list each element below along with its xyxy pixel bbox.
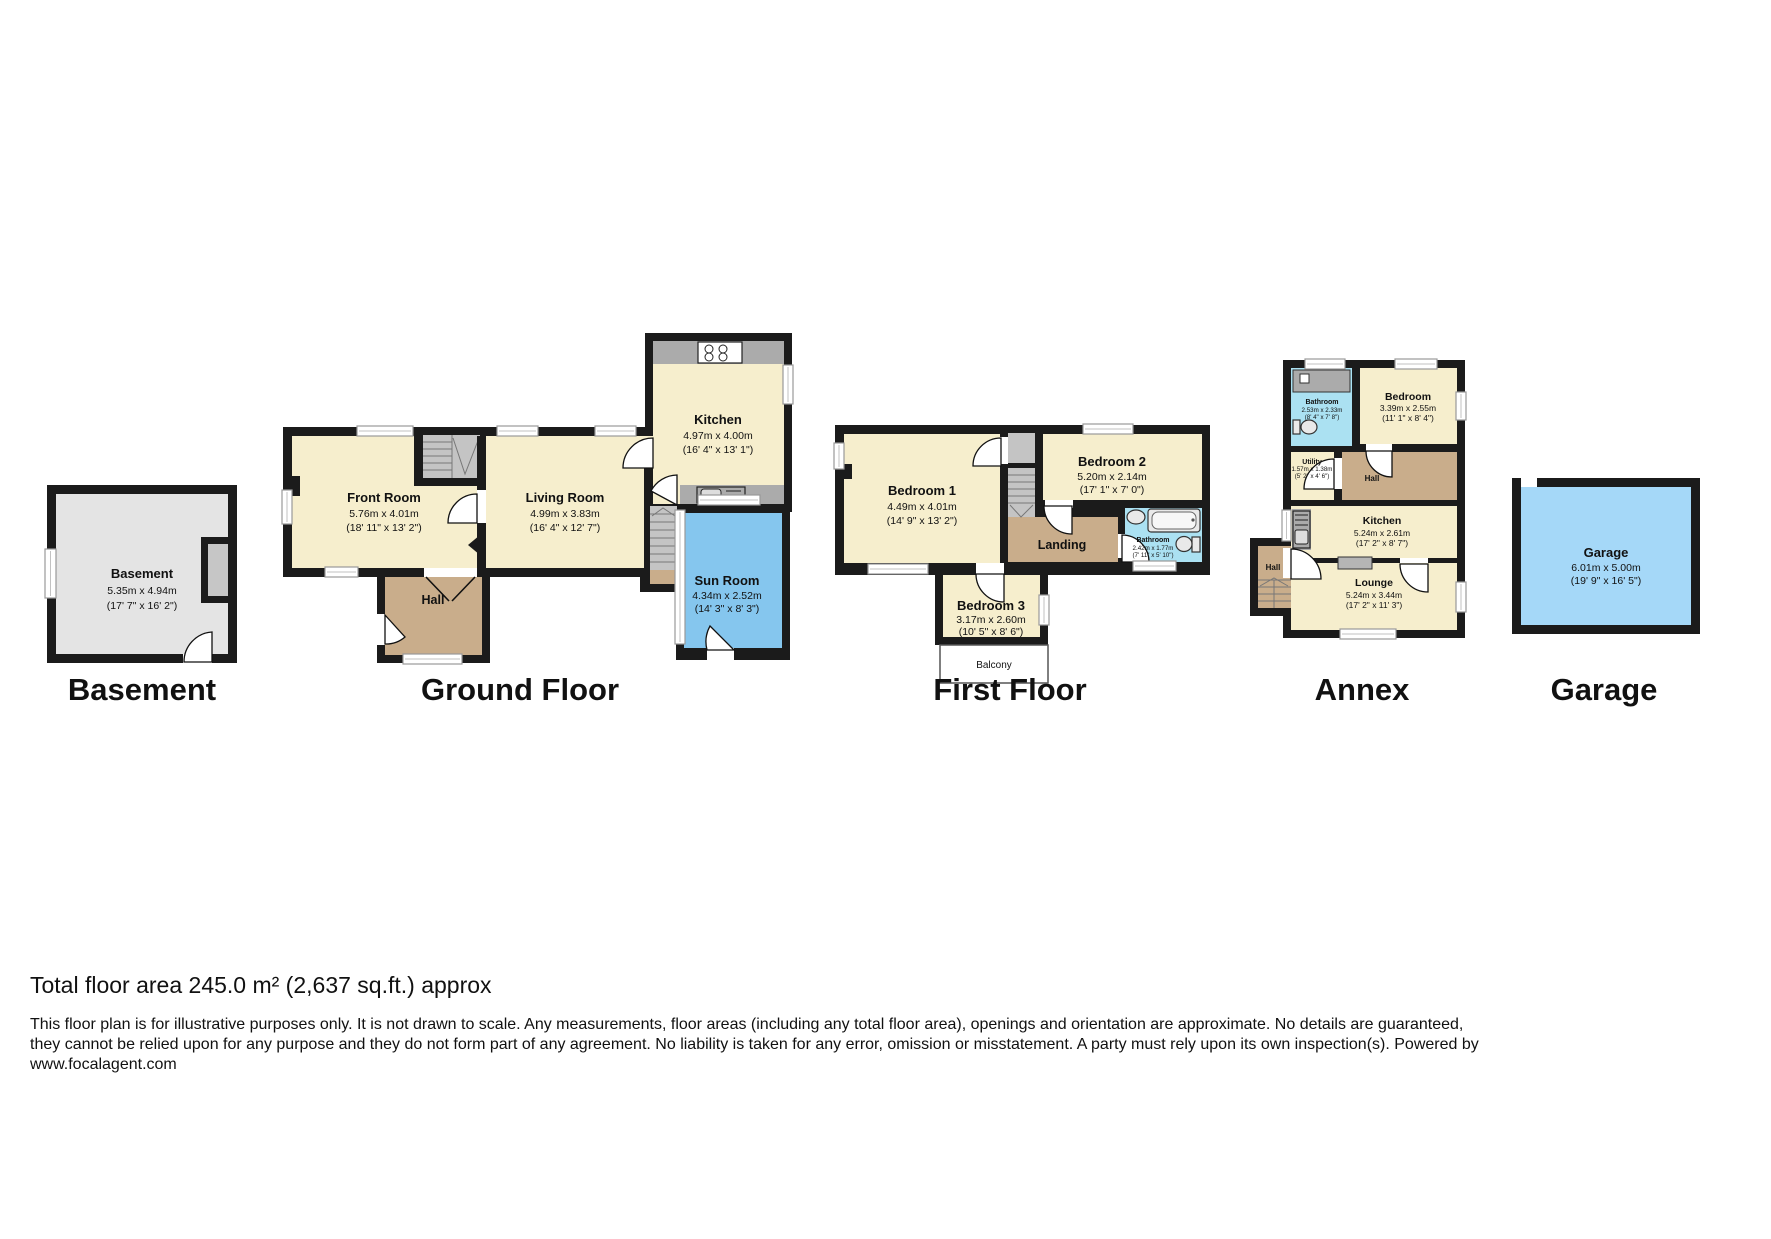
ground-floor-plan: Front Room 5.76m x 4.01m (18' 11" x 13' …	[282, 333, 793, 664]
front-room-name: Front Room	[347, 490, 421, 505]
room-annex-hall	[1342, 452, 1457, 500]
disclaimer-line-2: they cannot be relied upon for any purpo…	[30, 1036, 1479, 1053]
basement-window	[45, 549, 56, 598]
annex-bedroom-imperial: (11' 1" x 8' 4")	[1382, 413, 1434, 423]
bathroom-first-imperial: (7' 11" x 5' 10")	[1132, 552, 1173, 559]
annex-utility-imperial: (5' 2" x 4' 6")	[1295, 473, 1330, 480]
room-hall	[385, 577, 482, 655]
annex-kitchen-sink-icon	[1292, 509, 1311, 550]
annex-utility-name: Utility	[1302, 459, 1322, 466]
bedroom1-metric: 4.49m x 4.01m	[887, 501, 957, 513]
garage-name: Garage	[1584, 545, 1629, 560]
hall-name: Hall	[422, 593, 445, 607]
sun-room-name: Sun Room	[695, 573, 760, 588]
annex-kitchen-name: Kitchen	[1363, 515, 1402, 527]
garage-metric: 6.01m x 5.00m	[1571, 562, 1641, 574]
garage-door-opening	[1521, 478, 1537, 487]
total-floor-area: Total floor area 245.0 m² (2,637 sq.ft.)…	[30, 972, 492, 998]
front-room-door-opening	[477, 490, 486, 523]
annex-utility-metric: 1.57m x 1.38m	[1292, 466, 1333, 473]
front-room-metric: 5.76m x 4.01m	[349, 508, 419, 520]
room-label-bedroom-3: Bedroom 3 3.17m x 2.60m (10' 5" x 8' 6")	[956, 598, 1026, 638]
basement-plan: Basement 5.35m x 4.94m (17' 7" x 16' 2")	[45, 485, 237, 663]
hob-icon	[698, 342, 742, 363]
annex-bedroom-name: Bedroom	[1385, 391, 1431, 403]
bedroom3-metric: 3.17m x 2.60m	[956, 614, 1026, 626]
annex-lounge-name: Lounge	[1355, 577, 1393, 589]
room-label-living-room: Living Room 4.99m x 3.83m (16' 4" x 12' …	[526, 490, 605, 534]
floorplan-svg: Basement 5.35m x 4.94m (17' 7" x 16' 2")	[0, 0, 1771, 1239]
basement-stairs-inset	[201, 537, 228, 603]
sink-icon	[1127, 510, 1145, 524]
bathtub-icon	[1148, 509, 1200, 532]
basement-room-imperial: (17' 7" x 16' 2")	[107, 600, 177, 612]
chimney-notch-first	[844, 464, 852, 479]
annex-lounge-metric: 5.24m x 3.44m	[1346, 590, 1402, 600]
bedroom2-metric: 5.20m x 2.14m	[1077, 471, 1147, 483]
annex-lounge-door-opening	[1400, 558, 1428, 563]
bedroom1-name: Bedroom 1	[888, 483, 956, 498]
sun-room-metric: 4.34m x 2.52m	[692, 590, 762, 602]
basement-room-metric: 5.35m x 4.94m	[107, 585, 177, 597]
disclaimer-line-1: This floor plan is for illustrative purp…	[30, 1016, 1463, 1033]
annex-bath-counter	[1293, 370, 1350, 392]
floor-titles: Basement Ground Floor First Floor Annex …	[68, 672, 1658, 707]
annex-utility-door-opening	[1334, 458, 1342, 489]
landing-name: Landing	[1038, 538, 1087, 552]
title-first-floor: First Floor	[933, 672, 1086, 707]
kitchen-imperial: (16' 4" x 13' 1")	[683, 444, 753, 456]
annex-bathroom-metric: 2.53m x 2.33m	[1302, 407, 1343, 414]
stairs-icon-ground	[414, 427, 483, 486]
annex-kitchen-metric: 5.24m x 2.61m	[1354, 528, 1410, 538]
room-label-annex-bedroom: Bedroom 3.39m x 2.55m (11' 1" x 8' 4")	[1380, 391, 1436, 423]
title-garage: Garage	[1551, 672, 1658, 707]
living-room-imperial: (16' 4" x 12' 7")	[530, 522, 600, 534]
floorplan-sheet: Basement 5.35m x 4.94m (17' 7" x 16' 2")	[0, 0, 1771, 1239]
first-floor-plan: Bedroom 1 4.49m x 4.01m (14' 9" x 13' 2"…	[834, 424, 1210, 683]
bathroom-first-metric: 2.42m x 1.77m	[1133, 545, 1174, 552]
room-label-annex-bathroom: Bathroom 2.53m x 2.33m (8' 4" x 7' 8")	[1302, 399, 1343, 421]
kitchen-metric: 4.97m x 4.00m	[683, 430, 753, 442]
living-room-metric: 4.99m x 3.83m	[530, 508, 600, 520]
title-annex: Annex	[1315, 672, 1411, 707]
annex-bathroom-imperial: (8' 4" x 7' 8")	[1305, 414, 1340, 421]
annex-toilet-icon	[1293, 420, 1317, 434]
bedroom3-name: Bedroom 3	[957, 598, 1025, 613]
room-label-sun-room: Sun Room 4.34m x 2.52m (14' 3" x 8' 3")	[692, 573, 762, 615]
toilet-icon	[1176, 537, 1200, 553]
living-room-name: Living Room	[526, 490, 605, 505]
room-label-front-room: Front Room 5.76m x 4.01m (18' 11" x 13' …	[346, 490, 421, 534]
annex-bathroom-name: Bathroom	[1305, 399, 1338, 406]
hall-side-door-opening	[377, 614, 385, 645]
room-label-bedroom-1: Bedroom 1 4.49m x 4.01m (14' 9" x 13' 2"…	[887, 483, 957, 527]
annex-plan: Bathroom 2.53m x 2.33m (8' 4" x 7' 8") B…	[1250, 359, 1466, 639]
bedroom3-door-opening	[976, 563, 1004, 575]
stairs-icon-down	[650, 475, 677, 584]
lounge-hearth-icon	[1338, 557, 1372, 569]
annex-hall-name: Hall	[1365, 474, 1380, 483]
room-label-basement: Basement 5.35m x 4.94m (17' 7" x 16' 2")	[107, 566, 177, 612]
bedroom2-name: Bedroom 2	[1078, 454, 1146, 469]
annex-lounge-imperial: (17' 2" x 11' 3")	[1346, 600, 1403, 610]
sun-room-imperial: (14' 3" x 8' 3")	[695, 603, 760, 615]
garage-plan: Garage 6.01m x 5.00m (19' 9" x 16' 5")	[1512, 478, 1700, 634]
bedroom3-imperial: (10' 5" x 8' 6")	[959, 626, 1024, 638]
bedroom1-imperial: (14' 9" x 13' 2")	[887, 515, 957, 527]
stairs-icon-first	[1008, 433, 1035, 517]
garage-imperial: (19' 9" x 16' 5")	[1571, 575, 1641, 587]
room-label-bedroom-2: Bedroom 2 5.20m x 2.14m (17' 1" x 7' 0")	[1077, 454, 1147, 496]
annex-bedroom-metric: 3.39m x 2.55m	[1380, 403, 1436, 413]
title-ground-floor: Ground Floor	[421, 672, 619, 707]
footer: Total floor area 245.0 m² (2,637 sq.ft.)…	[29, 972, 1479, 1073]
disclaimer-website: www.focalagent.com	[29, 1056, 177, 1073]
balcony-name: Balcony	[976, 660, 1012, 671]
title-basement: Basement	[68, 672, 216, 707]
annex-kitchen-imperial: (17' 2" x 8' 7")	[1356, 538, 1408, 548]
annex-basin-icon	[1300, 374, 1309, 383]
annex-hall2-name: Hall	[1266, 563, 1281, 572]
hall-double-door-opening	[424, 568, 477, 577]
basement-room-name: Basement	[111, 566, 174, 581]
bedroom2-imperial: (17' 1" x 7' 0")	[1080, 484, 1145, 496]
kitchen-name: Kitchen	[694, 412, 742, 427]
room-label-bathroom-first: Bathroom 2.42m x 1.77m (7' 11" x 5' 10")	[1132, 537, 1173, 559]
kitchen-counter-top	[653, 341, 784, 364]
front-room-imperial: (18' 11" x 13' 2")	[346, 522, 421, 534]
annex-hall2-door-opening	[1283, 548, 1291, 578]
bathroom-first-name: Bathroom	[1136, 537, 1169, 544]
